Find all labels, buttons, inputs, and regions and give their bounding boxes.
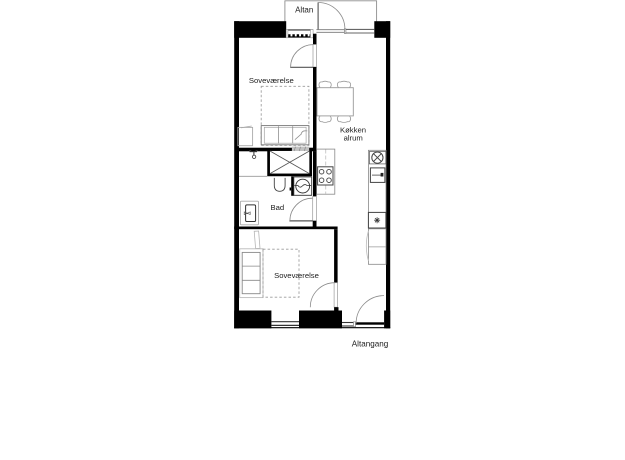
svg-text:Altangang: Altangang	[352, 340, 388, 349]
svg-text:Bad: Bad	[270, 203, 284, 212]
svg-text:Altan: Altan	[295, 6, 313, 15]
svg-text:Soveværelse: Soveværelse	[274, 271, 319, 280]
svg-text:Soveværelse: Soveværelse	[249, 76, 294, 85]
svg-text:alrum: alrum	[344, 134, 363, 143]
